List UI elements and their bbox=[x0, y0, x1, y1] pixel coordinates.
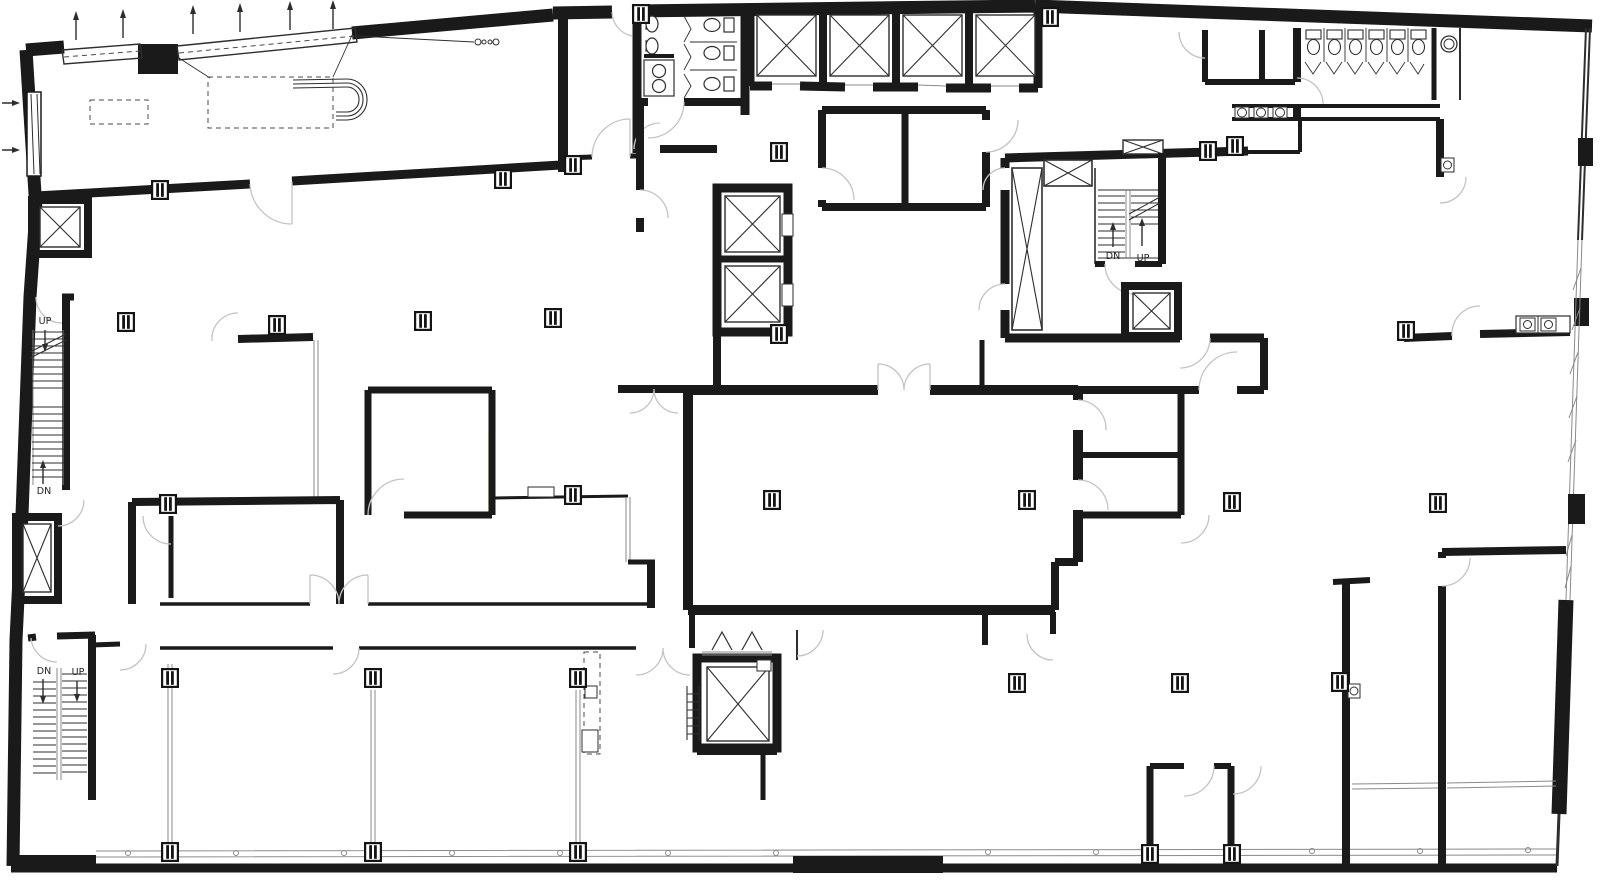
restroom-north bbox=[637, 8, 745, 153]
floor-plan-canvas: UP DN DN UP bbox=[0, 0, 1600, 884]
room-top-right bbox=[1179, 30, 1300, 152]
stair-treads bbox=[33, 674, 87, 773]
column-icon bbox=[1142, 845, 1158, 863]
reception-desk-curve bbox=[293, 79, 367, 120]
counter bbox=[528, 487, 554, 497]
column-icon bbox=[162, 669, 178, 687]
stair-southwest: DN UP bbox=[28, 635, 146, 800]
drinking-fountain-icon bbox=[1348, 684, 1360, 698]
stall-doors bbox=[684, 16, 691, 98]
storefront-windows bbox=[27, 28, 1556, 873]
column-icon bbox=[565, 486, 581, 504]
window-band bbox=[177, 28, 357, 60]
elevator-freight bbox=[687, 630, 823, 800]
restroom-east bbox=[1232, 28, 1466, 203]
stair-label-dn: DN bbox=[1106, 251, 1120, 262]
column-icon bbox=[1200, 142, 1216, 160]
stair-label-up: UP bbox=[39, 316, 52, 327]
furniture-dashed-outline bbox=[208, 77, 333, 128]
floor-plan-svg: UP DN DN UP bbox=[0, 0, 1600, 884]
drinking-fountain-icon bbox=[1441, 158, 1454, 172]
elevator-stacked-pair bbox=[634, 102, 793, 389]
sink-counter bbox=[644, 60, 674, 96]
rooms-southeast bbox=[1150, 550, 1566, 866]
meeting-rooms bbox=[822, 110, 1018, 207]
toilet-icon bbox=[704, 18, 734, 91]
column-icon bbox=[269, 316, 285, 334]
column-icon bbox=[1332, 673, 1348, 691]
stair-label-dn: DN bbox=[37, 666, 51, 677]
column-icon bbox=[415, 312, 431, 330]
column-icon bbox=[570, 669, 586, 687]
stair-treads bbox=[32, 332, 64, 477]
column-icon bbox=[1224, 493, 1240, 511]
column-icon bbox=[365, 669, 381, 687]
closet-block bbox=[1078, 338, 1264, 543]
column-icon bbox=[565, 156, 581, 174]
column-icon bbox=[365, 843, 381, 861]
window-mullion-dots bbox=[126, 848, 1531, 856]
rooms-midleft bbox=[132, 313, 655, 608]
central-room bbox=[618, 364, 1108, 610]
column-icon bbox=[1224, 845, 1240, 863]
column-icon bbox=[162, 843, 178, 861]
column-icon bbox=[1019, 491, 1035, 509]
sink-icon bbox=[1235, 107, 1287, 118]
column-icon bbox=[1430, 494, 1446, 512]
column-icon bbox=[570, 843, 586, 861]
columns bbox=[118, 5, 1446, 863]
right-core: DN UP bbox=[979, 140, 1264, 390]
column-icon bbox=[1009, 674, 1025, 692]
stair-core: DN UP bbox=[1095, 153, 1162, 294]
column-icon bbox=[771, 143, 787, 161]
column-icon bbox=[152, 181, 168, 199]
column-icon bbox=[160, 495, 176, 513]
column-icon bbox=[1227, 137, 1243, 155]
stair-label-up: UP bbox=[72, 667, 85, 678]
kitchen-east bbox=[1404, 306, 1570, 338]
exterior-walls bbox=[11, 6, 1593, 868]
rooms-bottom-band bbox=[160, 610, 1053, 848]
stair-treads bbox=[1098, 196, 1158, 252]
column-icon bbox=[1042, 8, 1058, 26]
glazed-partition bbox=[168, 664, 580, 848]
stair-label-dn: DN bbox=[37, 486, 51, 497]
elevator-bank bbox=[750, 8, 1038, 88]
column-icon bbox=[495, 170, 511, 188]
stall-doors bbox=[1305, 62, 1424, 74]
dumbwaiter-dashed bbox=[582, 652, 600, 754]
elevator-core bbox=[1125, 286, 1178, 336]
elevator-west bbox=[16, 500, 84, 600]
cord-end-circles bbox=[475, 39, 499, 45]
elevator-nw bbox=[32, 200, 88, 254]
column-icon bbox=[545, 309, 561, 327]
column-icon bbox=[1172, 674, 1188, 692]
column-icon bbox=[1398, 322, 1414, 340]
column-icon bbox=[633, 5, 649, 23]
furniture-dashed-outline bbox=[90, 100, 148, 124]
column-icon bbox=[771, 325, 787, 343]
double-door-peaks bbox=[712, 632, 762, 650]
bottom-wall-segment bbox=[793, 856, 943, 873]
column-icon bbox=[118, 313, 134, 331]
vestibule-wall bbox=[563, 15, 640, 172]
exterior-arrows bbox=[2, 0, 336, 153]
wall-pier bbox=[138, 44, 178, 74]
column-icon bbox=[764, 491, 780, 509]
